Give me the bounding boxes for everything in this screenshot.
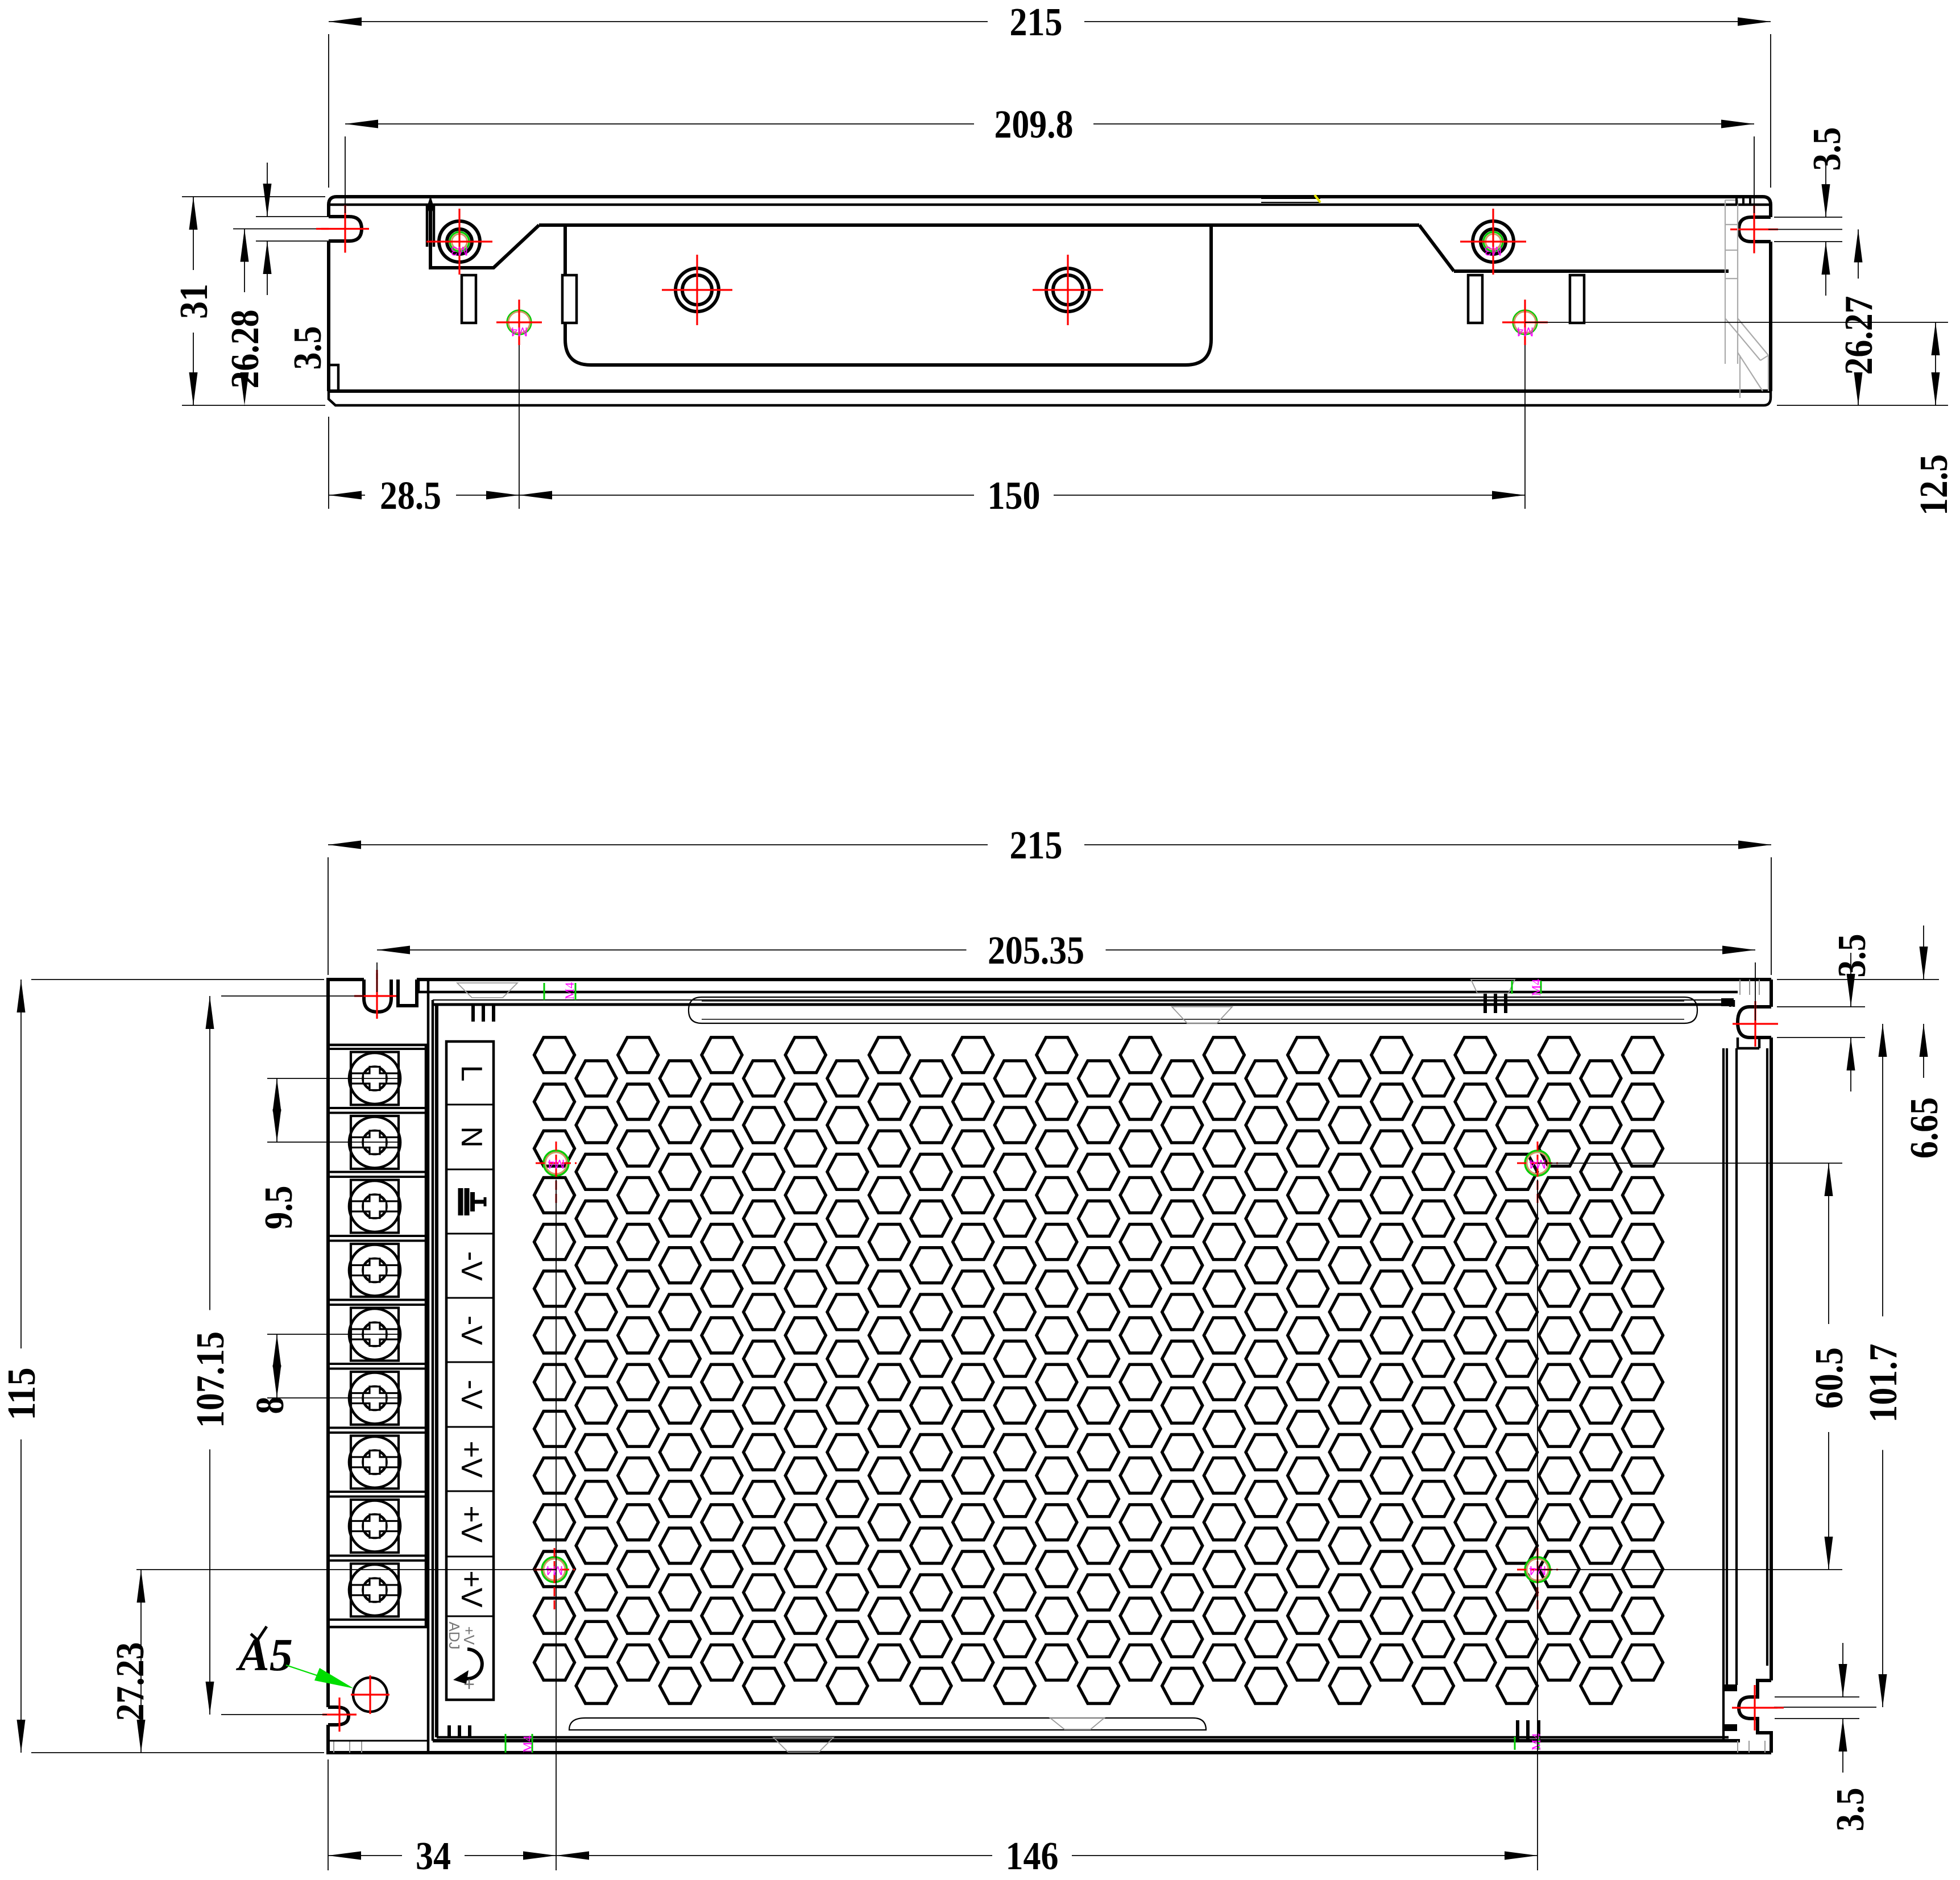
svg-text:26.27: 26.27: [1837, 296, 1881, 375]
svg-text:115: 115: [0, 1368, 44, 1421]
svg-text:M3: M3: [451, 244, 469, 258]
svg-text:3.5: 3.5: [1830, 934, 1874, 978]
svg-text:M4: M4: [520, 1736, 534, 1753]
svg-text:+V: +V: [455, 1441, 488, 1478]
svg-text:6.65: 6.65: [1903, 1097, 1946, 1159]
svg-text:-V: -V: [455, 1315, 488, 1345]
svg-text:M4: M4: [562, 982, 577, 1000]
svg-text:+: +: [463, 1674, 475, 1695]
svg-text:M4: M4: [511, 325, 528, 339]
svg-text:27.23: 27.23: [109, 1642, 152, 1721]
svg-text:M4: M4: [1529, 1733, 1543, 1751]
svg-text:3.5: 3.5: [1829, 1788, 1872, 1832]
svg-text:12.5: 12.5: [1912, 454, 1956, 516]
svg-text:-V: -V: [455, 1380, 488, 1409]
svg-text:205.35: 205.35: [988, 929, 1084, 973]
svg-text:215: 215: [1010, 824, 1063, 868]
svg-text:L: L: [455, 1065, 488, 1082]
svg-text:34: 34: [416, 1835, 451, 1878]
svg-text:M4: M4: [548, 1157, 565, 1171]
svg-text:107.15: 107.15: [189, 1331, 233, 1428]
svg-text:9.5: 9.5: [257, 1186, 301, 1230]
svg-text:+V: +V: [455, 1570, 488, 1607]
svg-text:M4: M4: [546, 1563, 563, 1578]
svg-text:ADJ: ADJ: [446, 1621, 463, 1649]
svg-text:+V: +V: [455, 1505, 488, 1542]
svg-text:215: 215: [1010, 1, 1063, 44]
svg-text:A5: A5: [235, 1629, 293, 1680]
svg-text:3.5: 3.5: [286, 326, 330, 370]
svg-text:209.8: 209.8: [994, 103, 1074, 147]
svg-text:N: N: [455, 1126, 488, 1148]
svg-text:8: 8: [248, 1397, 292, 1414]
svg-text:M4: M4: [1516, 325, 1534, 339]
svg-text:M4: M4: [1529, 979, 1543, 997]
svg-text:M4: M4: [1529, 1157, 1547, 1171]
svg-text:-V: -V: [455, 1251, 488, 1281]
svg-text:M3: M3: [1485, 244, 1502, 258]
svg-text:60.5: 60.5: [1808, 1347, 1851, 1409]
svg-text:26.28: 26.28: [223, 310, 267, 389]
svg-text:28.5: 28.5: [380, 474, 441, 518]
svg-text:3.5: 3.5: [1805, 127, 1849, 171]
svg-text:101.7: 101.7: [1862, 1344, 1905, 1423]
svg-text:150: 150: [988, 474, 1041, 518]
svg-text:146: 146: [1006, 1835, 1059, 1878]
svg-text:31: 31: [172, 284, 216, 319]
